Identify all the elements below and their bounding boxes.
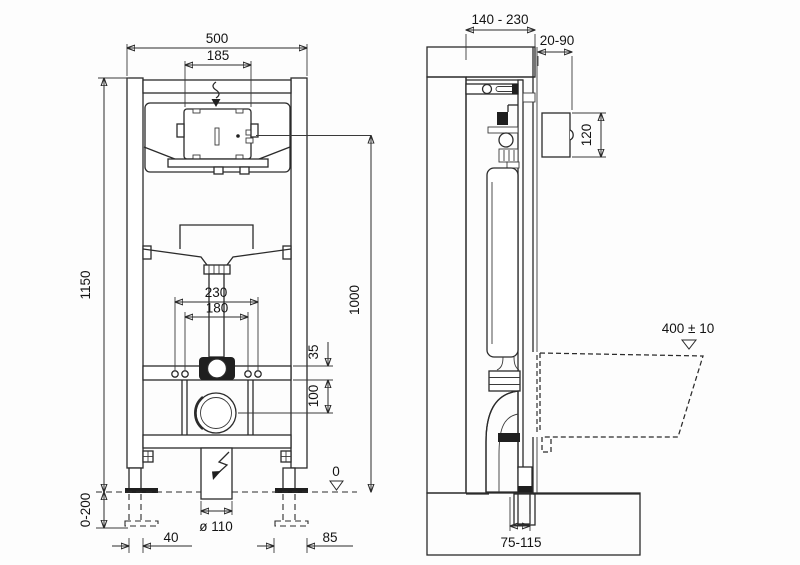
datum-triangle-floor	[330, 481, 343, 490]
datum-triangle-bowl	[682, 340, 696, 349]
right-foot	[275, 468, 308, 526]
dim-frame-height: 1150	[78, 270, 93, 299]
toilet-bowl-outline	[540, 353, 703, 452]
dim-plate-opening: 185	[207, 48, 230, 63]
actuator-duct	[523, 93, 535, 102]
dim-flush-bend-height: 1000	[347, 285, 362, 315]
dim-wall-finish: 20-90	[540, 33, 575, 48]
dim-outlet-distance: 75-115	[500, 535, 541, 550]
dim-foot-adjust: 0-200	[78, 493, 93, 528]
tank-bottom-right	[227, 249, 291, 265]
outlet-bend-side	[486, 391, 535, 525]
shaft-lower-outline	[180, 225, 253, 249]
pin-dot	[236, 134, 240, 138]
dim-outlet-offset: 100	[306, 385, 321, 408]
dim-bowl-height: 400 ± 10	[662, 321, 714, 336]
dim-plate-height: 120	[579, 124, 594, 147]
dim-floor-level: 0	[332, 464, 340, 479]
right-rail	[291, 78, 307, 468]
dim-frame-depth: 140 - 230	[471, 12, 528, 27]
left-rail	[127, 78, 143, 468]
dim-drain-diameter: ø 110	[199, 519, 233, 534]
bowl-outlet-stub	[498, 433, 520, 442]
bowl-dashed-outline	[540, 353, 703, 437]
wall-hatch-top	[427, 47, 535, 77]
flush-plate-block	[542, 113, 570, 157]
tank-clip-left	[143, 246, 151, 259]
cistern-access-box	[144, 82, 290, 174]
wall-hatch	[427, 77, 466, 493]
side-clip-left	[177, 124, 184, 137]
dim-bolts-outer: 230	[205, 285, 228, 300]
plate-button-bump	[570, 130, 573, 140]
wall-section	[427, 47, 640, 555]
frame-clip-left	[143, 451, 153, 462]
threaded-outlet-collar	[204, 265, 230, 274]
cistern-side	[486, 105, 535, 525]
frame-clip-right	[281, 451, 291, 462]
dim-foot-left: 40	[163, 530, 178, 545]
side-view: 140 - 230 20-90 120 400 ± 10 75-115	[427, 12, 714, 555]
bowl-trap-tab	[542, 437, 551, 452]
fill-valve-group	[488, 105, 519, 168]
tank-bottom-left	[143, 249, 207, 265]
dim-bolts-inner: 180	[206, 301, 229, 316]
front-rail-side	[518, 80, 523, 468]
wall-anchor-bracket	[466, 84, 518, 94]
left-foot	[125, 468, 158, 526]
inspection-shaft	[184, 109, 251, 159]
dim-overall-width: 500	[206, 31, 229, 46]
flush-plate	[542, 113, 573, 157]
front-view: 500 185 1150 1000 230 180	[78, 31, 371, 553]
bottom-cross-rail	[143, 435, 291, 448]
flush-elbow-port	[208, 359, 227, 378]
tank-clip-right	[283, 246, 291, 259]
pipe-clamp	[489, 371, 520, 391]
technical-drawing-page: 500 185 1150 1000 230 180	[0, 0, 800, 565]
installation-drawing: 500 185 1150 1000 230 180	[0, 0, 800, 565]
dim-flush-offset: 35	[306, 344, 321, 359]
dim-foot-right: 85	[322, 530, 337, 545]
